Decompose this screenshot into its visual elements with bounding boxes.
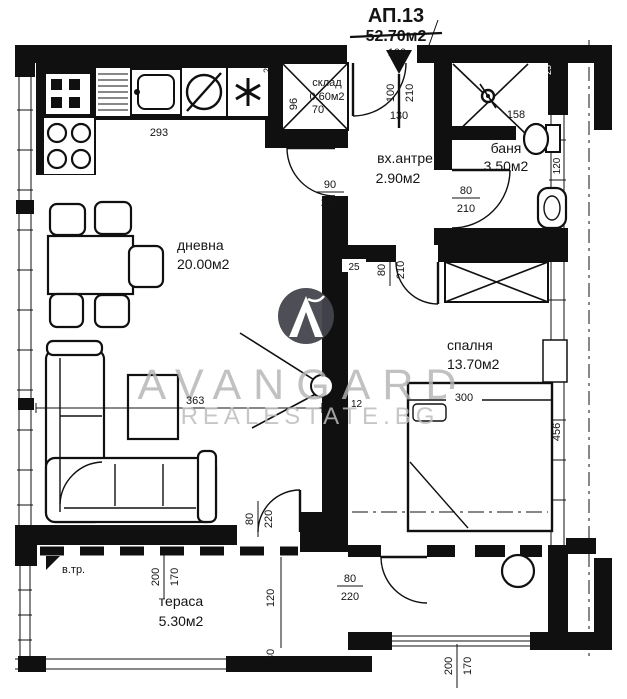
chair <box>50 204 85 235</box>
svg-text:80: 80 <box>376 264 388 276</box>
svg-text:210: 210 <box>395 261 407 279</box>
chair <box>95 295 129 327</box>
svg-text:210: 210 <box>321 197 339 209</box>
floor-plan-page: AVANGARD REALESTATE.BG АП.13 52.70м2 100… <box>0 0 627 699</box>
side-table <box>502 555 534 587</box>
svg-text:170: 170 <box>462 657 474 675</box>
stove-icon <box>44 118 94 174</box>
fridge-icon <box>46 74 90 114</box>
watermark-domain: REALESTATE.BG <box>181 403 440 430</box>
kitchen-dim: 293 <box>150 127 168 139</box>
storage-name: склад <box>312 77 342 89</box>
wall-pier <box>16 200 34 214</box>
sofa-wall-dim: 363 <box>186 395 204 407</box>
entry-offset-label: 130 <box>390 110 408 122</box>
svg-text:210: 210 <box>457 203 475 215</box>
wall-niche <box>543 340 567 382</box>
dining-table <box>48 236 133 294</box>
storage-width-label: 70 <box>312 104 324 116</box>
svg-text:220: 220 <box>341 591 359 603</box>
wall-12-dim: 12 <box>351 399 363 410</box>
sink-icon <box>96 68 180 116</box>
toilet-icon <box>524 124 560 154</box>
svg-text:25: 25 <box>262 63 272 73</box>
dining-set <box>48 202 163 327</box>
svg-text:90: 90 <box>324 179 336 191</box>
bed-length-dim: 456 <box>551 423 563 441</box>
shower-dim: 158 <box>507 109 525 121</box>
bed-width-dim: 300 <box>455 392 473 404</box>
drain-icon <box>46 556 60 570</box>
living-area: 20.00м2 <box>177 256 230 272</box>
chair <box>50 294 83 327</box>
bedroom-area: 13.70м2 <box>447 356 500 372</box>
bedroom-name: спалня <box>447 337 493 353</box>
svg-text:96: 96 <box>288 98 300 110</box>
washbasin-icon <box>538 188 566 228</box>
svg-text:200: 200 <box>150 568 162 586</box>
bath-wall-label: 25 <box>543 65 553 75</box>
entry-width-label: 100 <box>388 47 406 59</box>
bath-name: баня <box>491 140 522 156</box>
bath-area: 3.50м2 <box>484 158 529 174</box>
bedroom-window-dim: 200 170 <box>443 644 474 688</box>
svg-text:80: 80 <box>460 185 472 197</box>
watermark: AVANGARD REALESTATE.BG <box>138 288 469 430</box>
terrace-door-bedroom-dim: 80 220 <box>337 573 363 603</box>
svg-text:170: 170 <box>169 568 181 586</box>
svg-text:30: 30 <box>265 649 277 661</box>
svg-text:200: 200 <box>443 657 455 675</box>
terrace-30-dim: 30 <box>265 649 277 661</box>
chair <box>95 202 131 234</box>
svg-text:210: 210 <box>404 84 416 102</box>
terrace-door-bedroom <box>381 557 427 603</box>
bath-door <box>452 170 510 228</box>
storage-area: 0.60м2 <box>309 91 344 103</box>
svg-text:100: 100 <box>385 84 397 102</box>
svg-text:220: 220 <box>263 510 275 528</box>
bath-door-dim: 80 210 <box>452 185 480 215</box>
kitchen <box>36 63 268 175</box>
svg-text:456: 456 <box>551 423 563 441</box>
bath-fixture-dim: 120 <box>552 157 563 174</box>
washing-machine-icon <box>182 68 226 116</box>
bedroom-wall-dim: 25 <box>348 262 360 273</box>
hall-area: 2.90м2 <box>376 170 421 186</box>
svg-text:80: 80 <box>244 513 256 525</box>
living-name: дневна <box>177 237 224 253</box>
svg-text:25: 25 <box>543 65 553 75</box>
wardrobe <box>445 262 548 302</box>
chair <box>129 246 163 287</box>
hall-name: вх.антре <box>377 150 433 166</box>
terrace-area: 5.30м2 <box>159 613 204 629</box>
storage-wall-label: 25 <box>262 63 272 73</box>
svg-text:120: 120 <box>552 157 563 174</box>
wall-pier <box>18 398 34 410</box>
floor-plan-svg: AVANGARD REALESTATE.BG АП.13 52.70м2 100… <box>0 0 627 699</box>
svg-text:80: 80 <box>344 573 356 585</box>
dishwasher-icon <box>228 68 268 116</box>
storage-depth-label: 96 <box>288 98 300 110</box>
terrace-120-dim: 120 <box>265 589 277 607</box>
shaft-label: в.тр. <box>62 564 85 576</box>
terrace-name: тераса <box>159 593 204 609</box>
svg-text:120: 120 <box>265 589 277 607</box>
apartment-title: АП.13 <box>368 5 424 27</box>
